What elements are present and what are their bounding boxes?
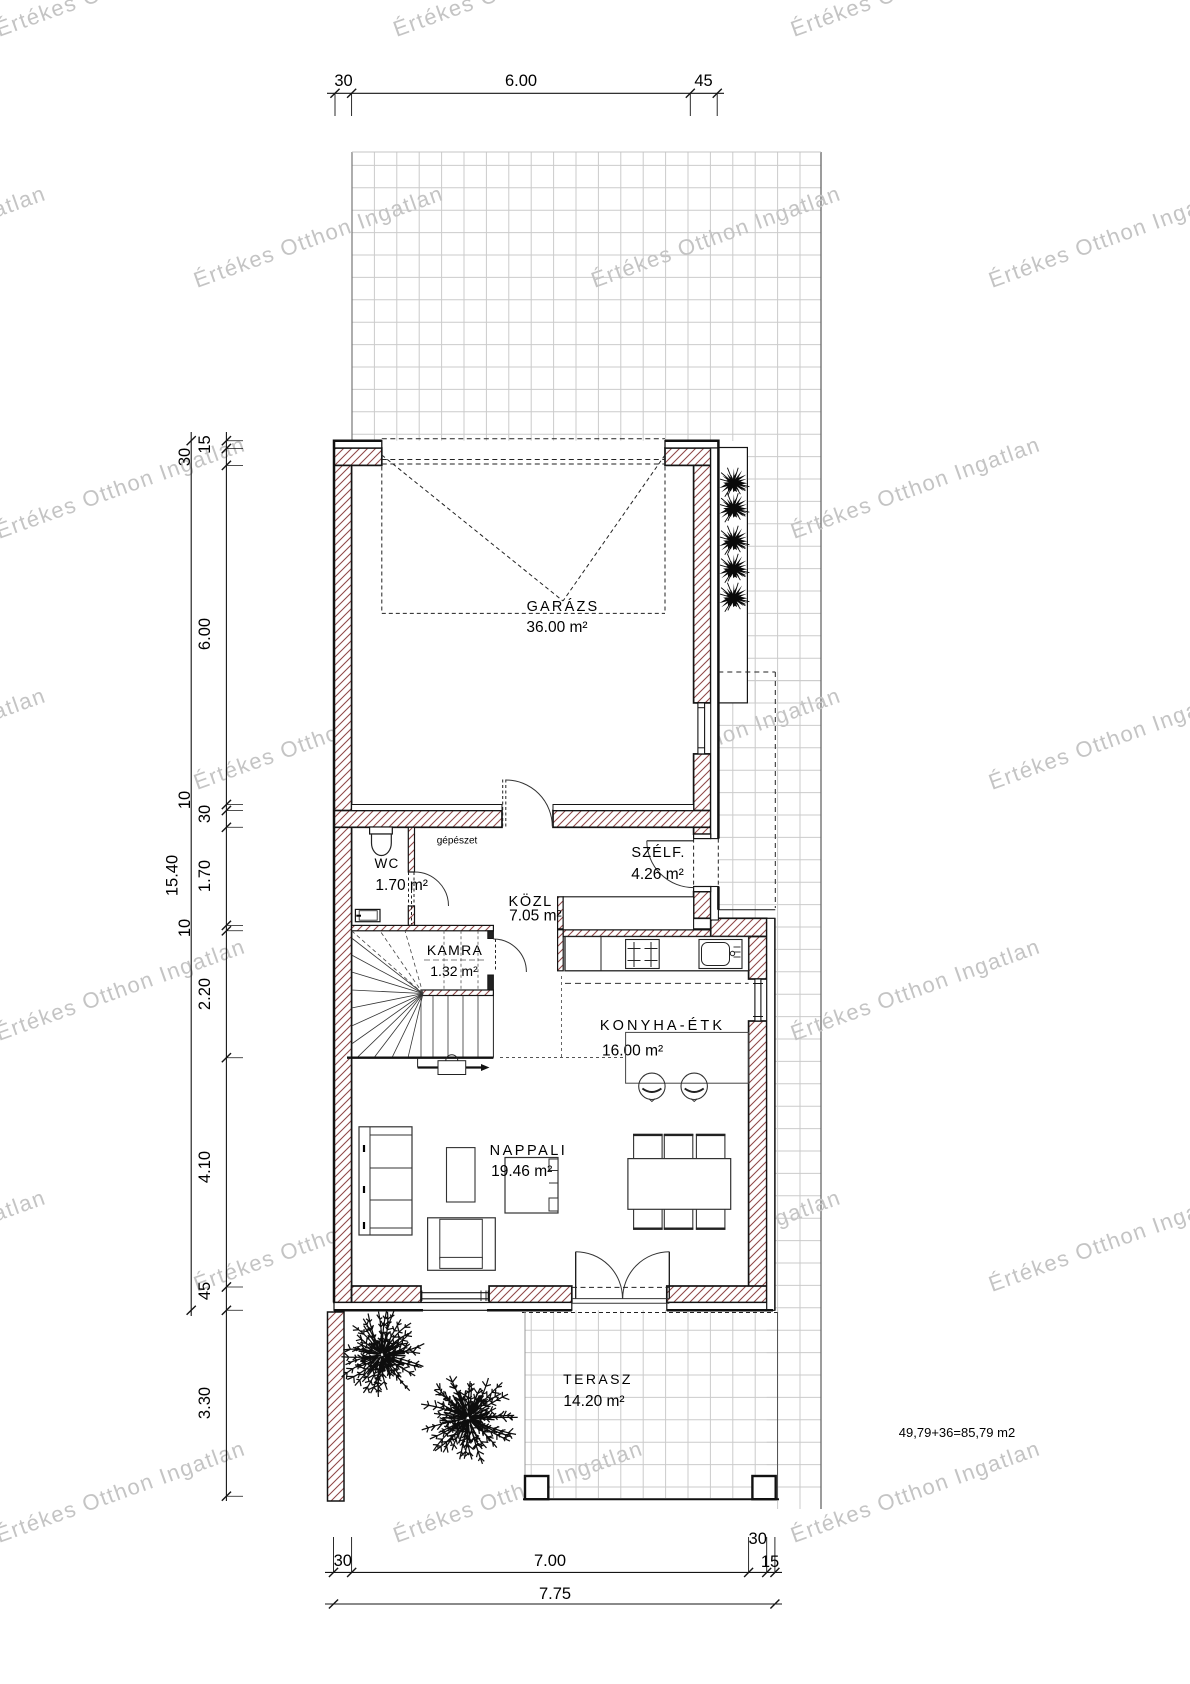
svg-text:30: 30 [176, 448, 194, 466]
svg-text:45: 45 [694, 72, 712, 90]
svg-text:15: 15 [196, 435, 214, 453]
svg-text:6.00: 6.00 [196, 618, 214, 650]
svg-text:WC: WC [375, 856, 400, 871]
svg-text:36.00 m²: 36.00 m² [526, 619, 587, 636]
svg-text:45: 45 [196, 1282, 214, 1300]
svg-text:KONYHA-ÉTK: KONYHA-ÉTK [600, 1017, 725, 1034]
svg-text:19.46 m²: 19.46 m² [491, 1163, 552, 1180]
svg-text:16.00 m²: 16.00 m² [602, 1043, 663, 1060]
svg-text:30: 30 [196, 805, 214, 823]
svg-text:49,79+36=85,79 m2: 49,79+36=85,79 m2 [899, 1425, 1015, 1440]
svg-text:7.05 m²: 7.05 m² [509, 908, 562, 925]
svg-text:TERASZ: TERASZ [563, 1371, 633, 1387]
svg-text:30: 30 [334, 72, 352, 90]
svg-text:14.20 m²: 14.20 m² [563, 1393, 624, 1410]
svg-text:4.26 m²: 4.26 m² [631, 866, 684, 883]
svg-text:4.10: 4.10 [196, 1151, 214, 1183]
svg-text:1.70 m²: 1.70 m² [375, 877, 428, 894]
svg-text:10: 10 [176, 919, 194, 937]
svg-text:1.70: 1.70 [196, 860, 214, 892]
svg-text:15.40: 15.40 [164, 855, 182, 896]
svg-text:SZÉLF.: SZÉLF. [631, 844, 685, 861]
svg-text:30: 30 [334, 1552, 352, 1570]
svg-text:gépészet: gépészet [437, 836, 478, 847]
svg-text:2.20: 2.20 [196, 978, 214, 1010]
svg-text:KAMRA: KAMRA [427, 942, 483, 958]
svg-text:7.00: 7.00 [534, 1552, 566, 1570]
svg-text:30: 30 [749, 1530, 767, 1548]
svg-text:10: 10 [176, 791, 194, 809]
svg-text:15: 15 [761, 1553, 779, 1571]
svg-text:NAPPALI: NAPPALI [490, 1143, 568, 1159]
svg-text:6.00: 6.00 [505, 72, 537, 90]
svg-text:3.30: 3.30 [196, 1387, 214, 1419]
svg-text:1.32 m²: 1.32 m² [430, 963, 478, 979]
svg-text:GARÁZS: GARÁZS [527, 598, 600, 615]
svg-text:7.75: 7.75 [539, 1585, 571, 1603]
